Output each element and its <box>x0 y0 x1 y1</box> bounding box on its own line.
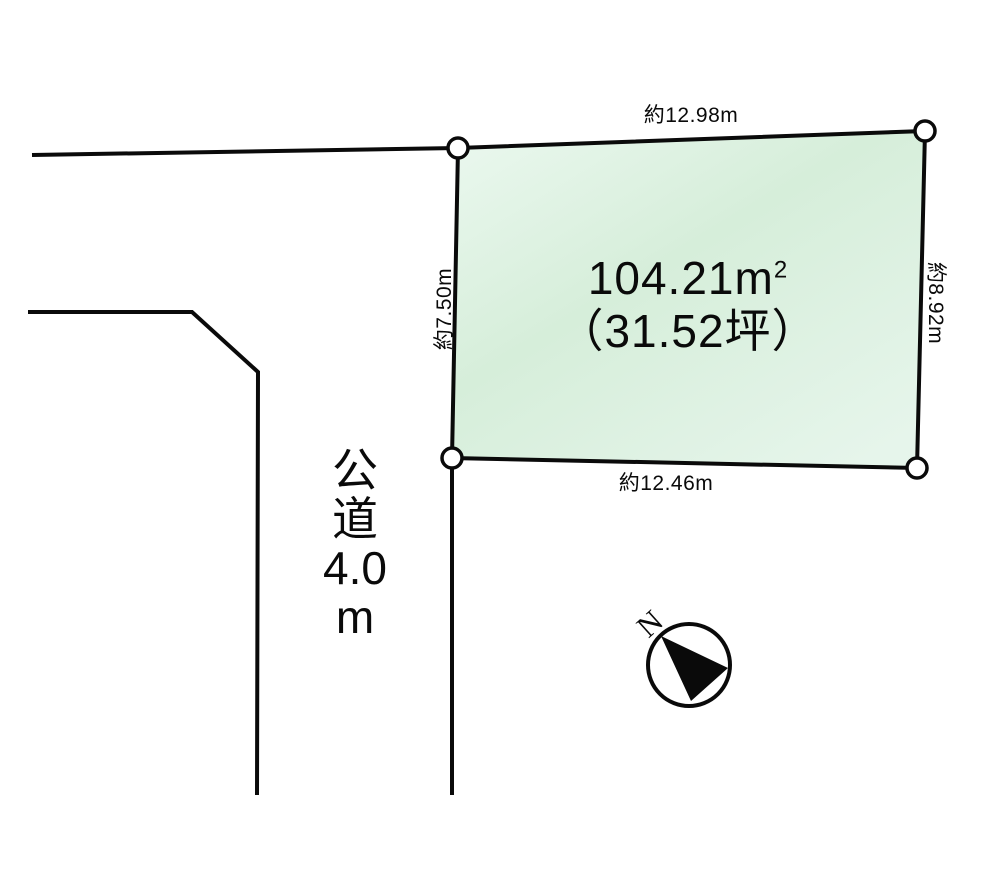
road-label-line: 公 <box>300 446 410 495</box>
plot-area-square-meters: 104.21m2 <box>488 252 888 305</box>
plot-area-tsubo: （31.52坪） <box>488 305 888 358</box>
plot-area-superscript: 2 <box>774 257 788 284</box>
land-plot-diagram: 約12.98m 約12.46m 約7.50m 約8.92m 104.21m2 （… <box>0 0 1000 872</box>
road-label-line: 道 <box>300 495 410 544</box>
plot-area-label: 104.21m2 （31.52坪） <box>488 252 888 358</box>
dimension-label-bottom: 約12.46m <box>566 467 766 497</box>
diagram-drawing <box>0 0 1000 872</box>
boundary-point-bottom-left <box>442 448 462 468</box>
boundary-point-top-left <box>448 138 468 158</box>
dimension-label-left: 約7.50m <box>428 239 454 379</box>
dimension-label-right: 約8.92m <box>926 233 952 373</box>
dimension-label-top: 約12.98m <box>591 99 791 129</box>
road-label-line: m <box>300 593 410 642</box>
road-label-line: 4.0 <box>300 544 410 593</box>
road-label: 公 道 4.0 m <box>300 446 410 642</box>
road-corner-boundary-line <box>28 312 258 795</box>
boundary-point-bottom-right <box>907 458 927 478</box>
road-edge-top-line <box>32 148 458 155</box>
boundary-point-top-right <box>915 121 935 141</box>
